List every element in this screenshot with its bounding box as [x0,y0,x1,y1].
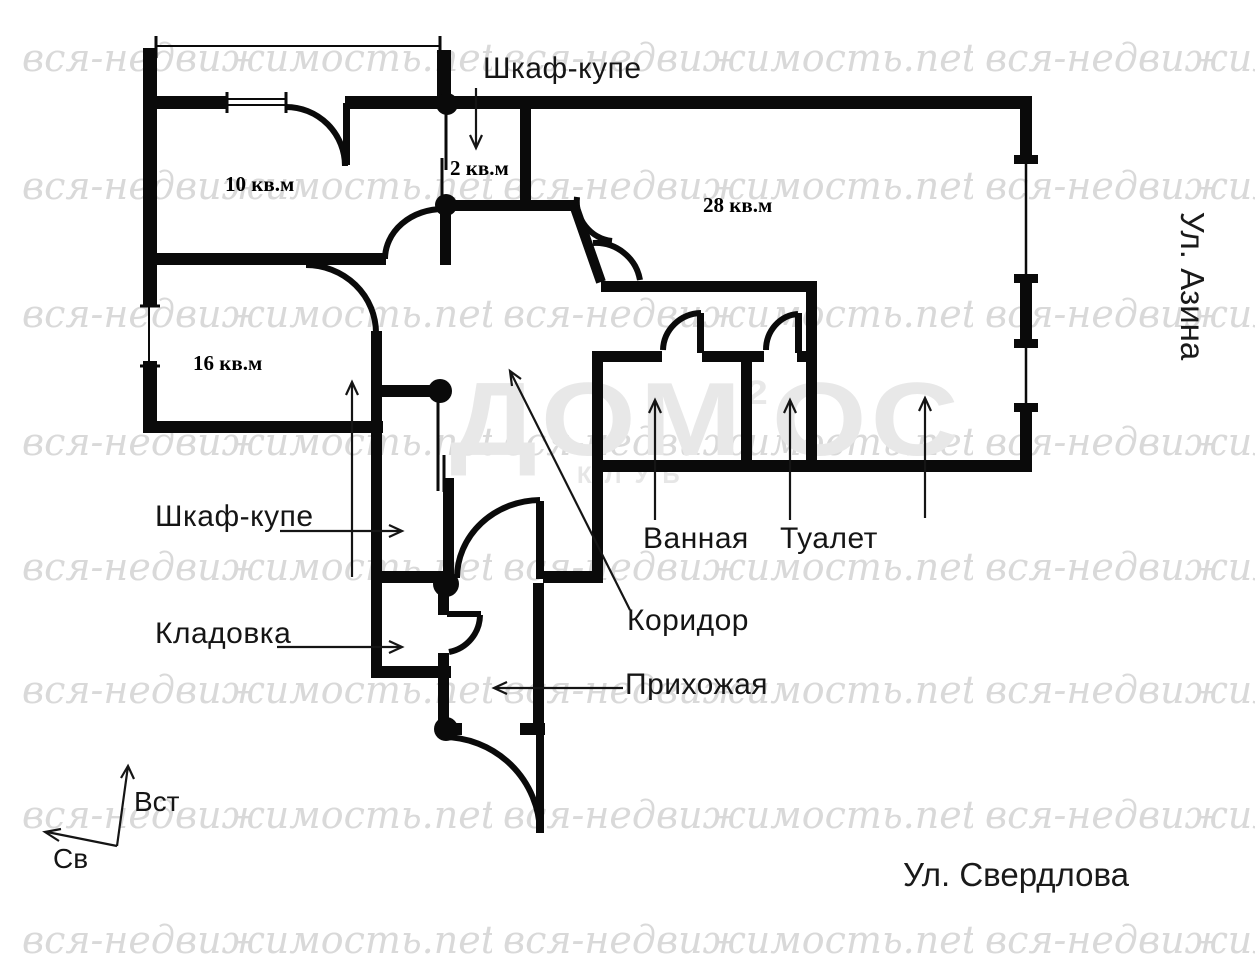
door-arc-corridor [457,500,540,578]
door-arc-balcony [286,107,345,166]
wall-top-left [145,96,227,109]
label-area-room10: 10 кв.м [225,172,294,197]
label-wardrobe-left: Шкаф-купе [155,500,314,534]
wall-room16-bottom [143,421,383,433]
floorplan-drawing [0,0,1255,960]
dot-joint [436,93,458,115]
label-corridor: Коридор [627,604,749,638]
wall-vestibule-top [601,281,817,292]
street-label-azina: Ул. Азина [1173,181,1211,391]
street-label-sverdlova: Ул. Свердлова [903,856,1129,894]
window-cap-1 [1014,155,1038,164]
door-arc-storage [449,615,480,652]
wall-bathroom-top-1 [592,351,662,362]
wall-right-1 [1020,97,1032,163]
door-arc-bathroom [663,313,701,350]
wall-right-pier [1020,279,1032,342]
wall-bathroom-toilet-divider [741,351,752,472]
door-arc-room10 [385,209,443,259]
door-arc-entrance [443,737,540,832]
wall-closet-column-left [371,433,382,678]
label-toilet: Туалет [780,522,878,556]
door-leaf-corridor [536,501,544,579]
wall-toilet-right [806,281,817,472]
wall-bottom-main [592,460,1032,472]
wall-bathroom-top-2 [702,351,764,362]
wall-closet2-right [520,109,531,208]
label-wardrobe-top: Шкаф-купе [483,52,642,86]
wall-room10-room16-divider [143,253,386,265]
compass-label-left: Св [53,843,88,875]
floorplan-page: вся-недвижимость.net вся-недвижимость.ne… [0,0,1255,960]
dot-joint [435,194,457,216]
label-area-closet2: 2 кв.м [450,156,509,181]
label-hallway: Прихожая [625,668,768,702]
dot-joint [428,379,452,403]
wall-closet-right [443,478,454,584]
door-leaf-toilet [795,313,802,353]
wall-left-upper [143,48,157,307]
door-leaf-bathroom [697,313,704,353]
label-area-room16: 16 кв.м [193,351,262,376]
compass-label-up: Вст [134,786,180,818]
wall-hallway-right [533,583,544,735]
label-bathroom: Ванная [643,522,749,556]
wall-closet2-bottom [444,200,574,211]
door-arc-room16 [306,265,376,333]
wall-room16-right [371,331,382,433]
wall-right-3 [1020,408,1032,472]
label-storage: Кладовка [155,617,291,651]
label-area-room28: 28 кв.м [703,193,772,218]
compass-arrow-up [117,766,128,846]
door-arc-toilet [766,314,798,350]
door-leaf-storage [447,611,481,617]
